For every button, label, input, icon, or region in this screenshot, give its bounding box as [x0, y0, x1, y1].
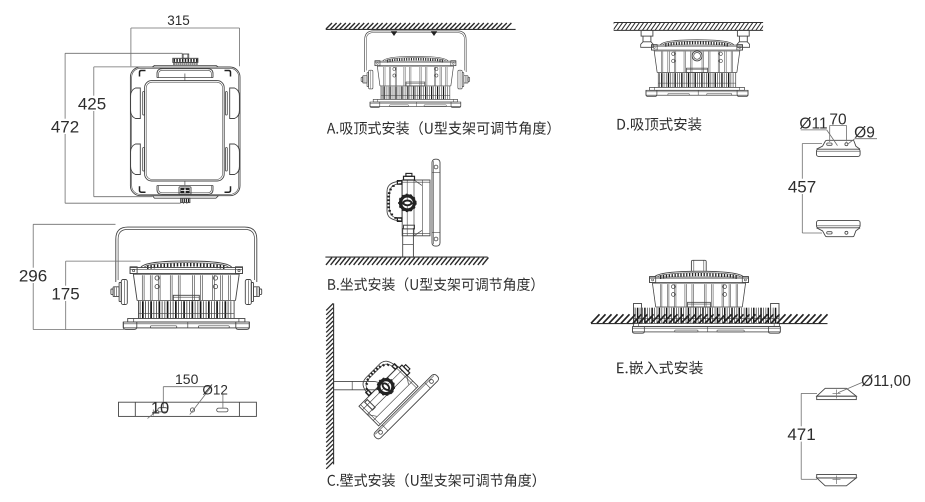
svg-text:472: 472	[51, 118, 79, 137]
svg-text:296: 296	[19, 267, 47, 286]
svg-text:457: 457	[788, 178, 816, 197]
svg-text:315: 315	[167, 13, 190, 28]
svg-text:Ø12: Ø12	[202, 383, 228, 398]
svg-text:425: 425	[78, 95, 106, 114]
svg-text:150: 150	[175, 371, 199, 387]
svg-text:175: 175	[51, 285, 79, 304]
svg-text:Ø11,00: Ø11,00	[861, 373, 911, 390]
svg-text:10: 10	[151, 399, 169, 417]
svg-text:471: 471	[787, 425, 815, 444]
